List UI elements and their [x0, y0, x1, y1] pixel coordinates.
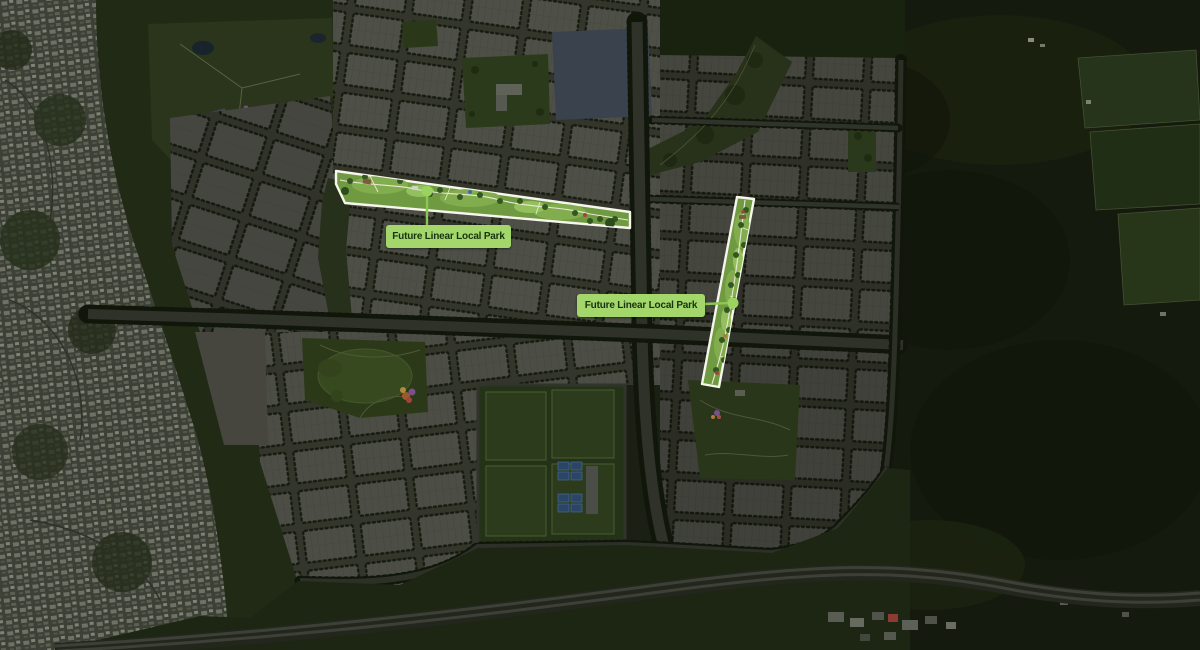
sports-precinct: [478, 385, 625, 545]
park-label-2: Future Linear Local Park: [577, 294, 705, 317]
masterplan-map: Future Linear Local Park Future Linear L…: [0, 0, 1200, 650]
park-marker-1: [422, 186, 433, 197]
park-marker-2: [728, 298, 739, 309]
park-label-1: Future Linear Local Park: [386, 225, 511, 248]
aerial-basemap: [0, 0, 1200, 650]
